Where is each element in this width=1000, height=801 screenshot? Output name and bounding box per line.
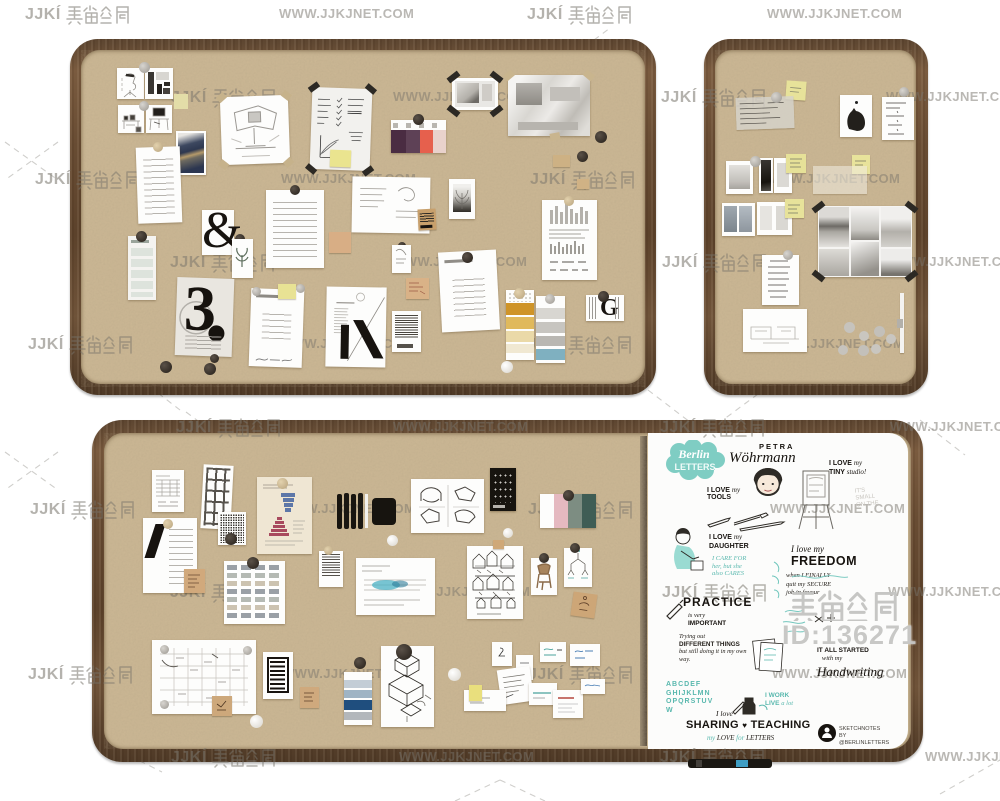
svg-text:Berlin: Berlin (677, 447, 710, 461)
svg-text:LETTERS: LETTERS (674, 462, 715, 472)
